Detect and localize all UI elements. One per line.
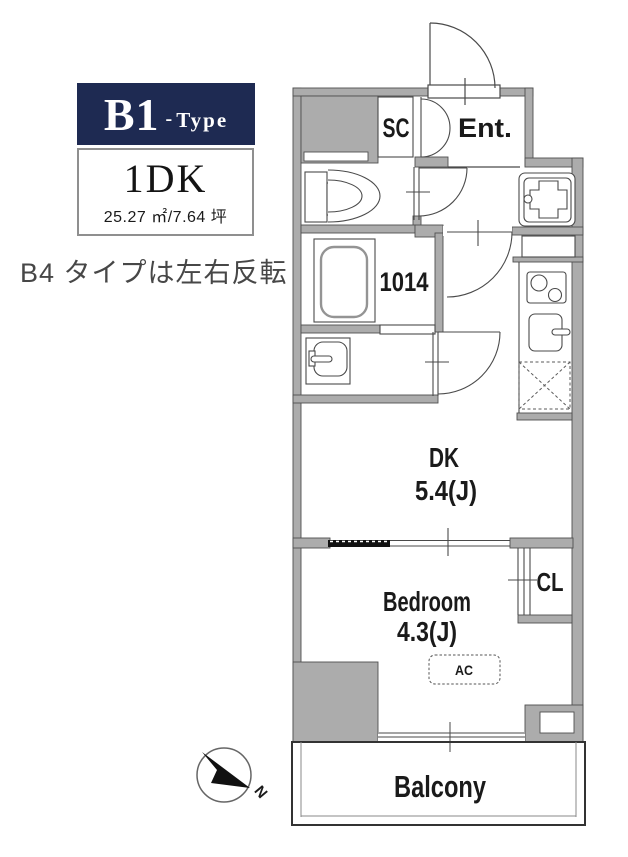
wall-left [293,88,301,742]
wall-kitchen-top [512,227,583,235]
washing-machine-drain [524,195,532,203]
corridor-door [447,220,512,297]
bedroom-window [378,722,525,752]
layout-type: 1DK [124,158,208,200]
mirror-note: B4 タイプは左右反転 [20,251,288,290]
dk-bedroom-sliding-door [328,528,510,556]
shoe-closet-door-arc-bottom [421,128,450,157]
washbasin [306,338,350,384]
kitchen [519,236,575,413]
washroom-door [425,332,500,396]
compass: N [197,748,271,802]
floorplan-page: N SC Ent. 1014 DK 5.4(J) Bedroom 4.3(J) … [0,0,628,857]
wall-ent-bottom-stub [415,157,448,167]
washing-machine-pan [519,173,575,226]
toilet-tank [305,172,327,222]
wall-toilet-bottom [301,225,415,233]
washbasin-faucet [311,356,332,362]
label-bath-unit: 1014 [380,267,429,297]
wall-dk-bedroom-right [510,538,573,548]
label-air-conditioner: AC [455,662,473,678]
wall-bath-right [435,233,443,332]
label-dining-kitchen-size: 5.4(J) [415,475,477,506]
entrance-door-sill [428,85,500,98]
corridor-door-swing-arc [447,232,512,297]
type-badge-primary: B1 [104,88,160,141]
refrigerator-space [519,362,570,409]
kitchen-counter-top-box [522,236,575,257]
type-badge-suffix: Type [176,108,228,133]
closet [508,548,537,615]
toilet-vent-window [304,152,368,161]
wall-kitchen-bottom [517,413,572,420]
toilet-door [406,167,467,220]
wall-kitchen-mid [513,257,583,262]
wall-closet-bottom [518,615,572,623]
pipe-space-box [540,712,574,733]
entrance-door-swing-arc [430,23,495,88]
wall-top-a [293,88,428,96]
wall-ent-right [525,88,533,166]
stove-burner-small [549,289,562,302]
type-badge: B1 - Type [77,83,255,145]
toilet [305,170,380,222]
layout-box: 1DK 25.27 ㎡/7.64 坪 [77,148,254,236]
wall-bath-bottom [301,325,380,333]
entrance-door [428,23,500,105]
label-balcony: Balcony [394,769,487,804]
shoe-closet-door-arc-top [421,99,450,128]
label-bedroom: Bedroom [383,586,471,617]
bathtub [321,247,367,317]
compass-north-label: N [251,783,271,802]
type-badge-dash: - [166,108,173,131]
layout-area: 25.27 ㎡/7.64 坪 [104,203,228,227]
label-bedroom-size: 4.3(J) [397,616,457,647]
kitchen-faucet [552,329,570,335]
refrigerator-diagonal-b [519,362,570,409]
label-closet: CL [537,567,564,597]
wall-block-bottomleft [293,662,378,742]
wall-washroom-bottom [293,395,438,403]
label-entrance: Ent. [458,113,512,143]
stove-burner-large [531,275,547,291]
bath-door [380,325,435,334]
wall-dk-bedroom-left [293,538,330,548]
label-dining-kitchen: DK [429,442,459,473]
washroom-door-swing-arc [438,332,500,394]
label-shoe-closet: SC [383,113,410,143]
